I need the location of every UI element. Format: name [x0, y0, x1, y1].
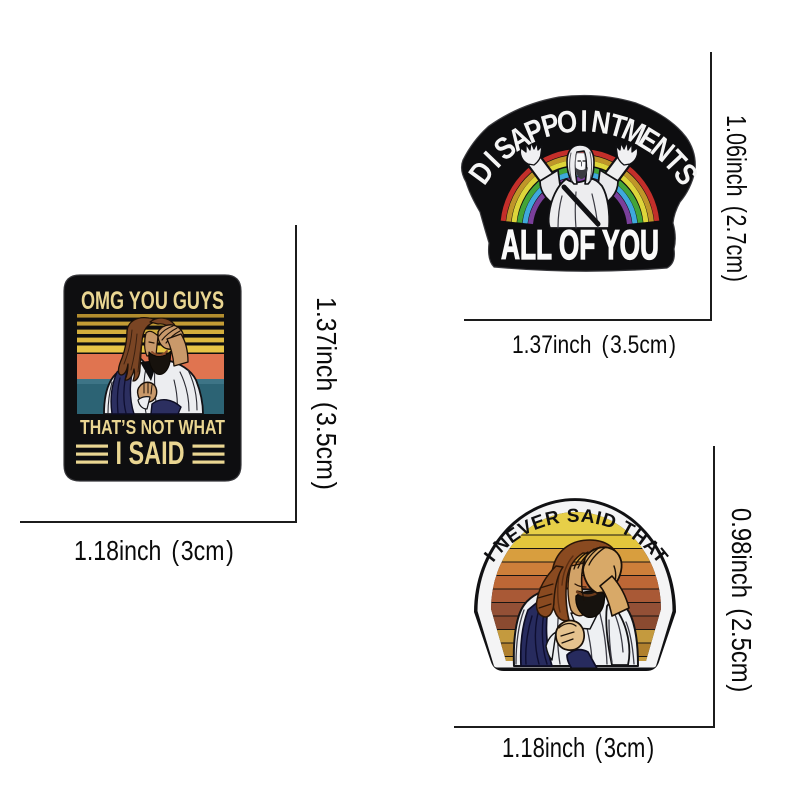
svg-text:I: I	[580, 104, 588, 139]
svg-text:I SAID: I SAID	[116, 435, 185, 471]
svg-text:ALL OF YOU: ALL OF YOU	[501, 221, 659, 268]
svg-text:OMG YOU GUYS: OMG YOU GUYS	[81, 287, 224, 315]
